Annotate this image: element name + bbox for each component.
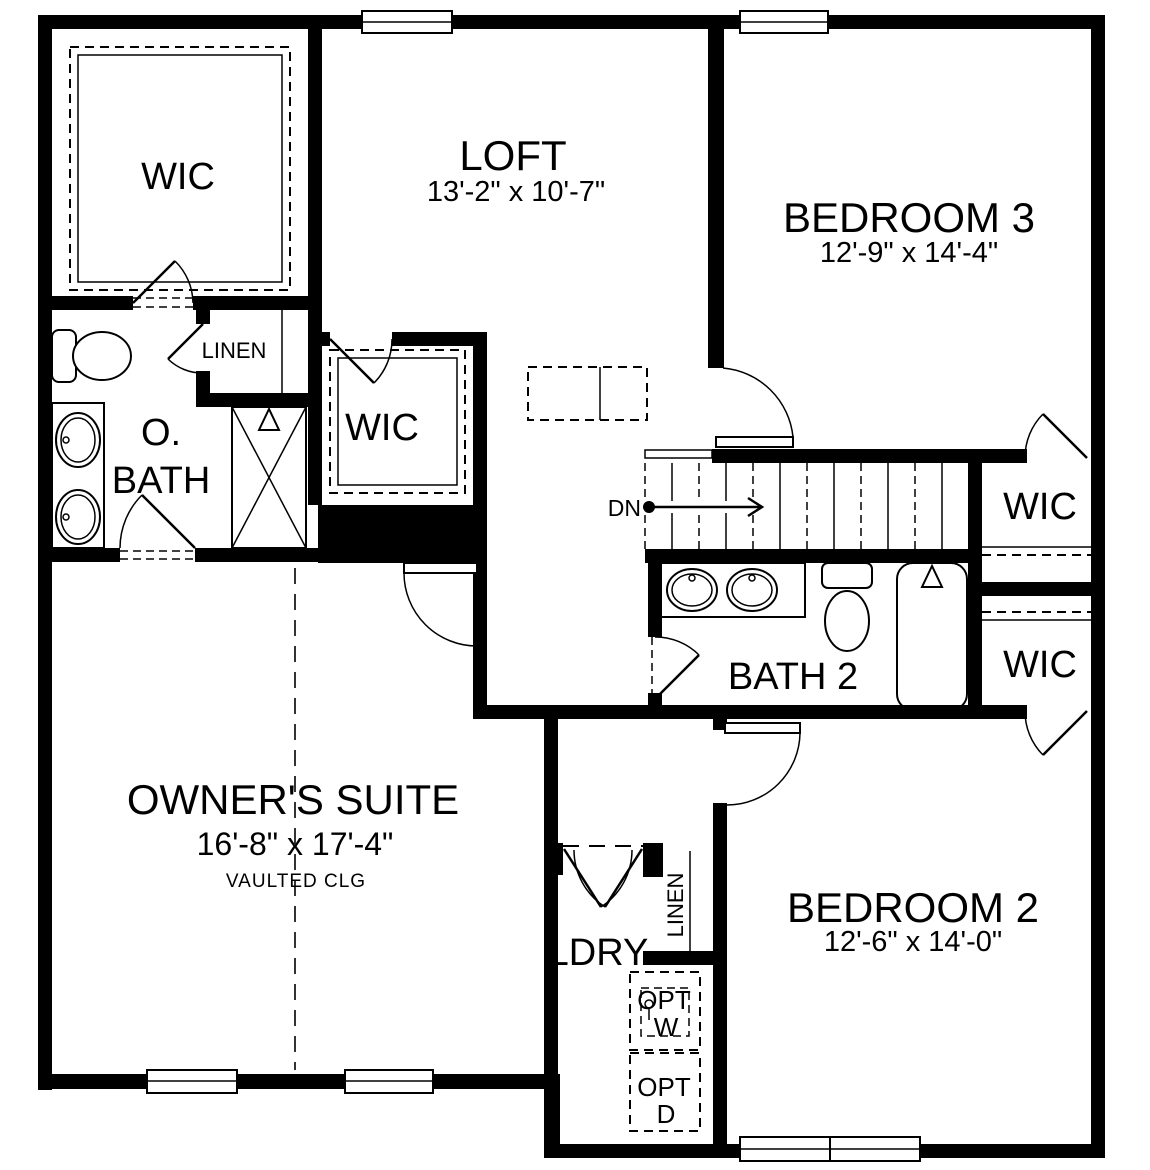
toilet-icon (52, 330, 131, 382)
label-opt-washer-line2: W (654, 1012, 679, 1042)
door-swing-icon-wic-right-lower (1025, 711, 1087, 755)
window-icon-owners-left (147, 1070, 237, 1093)
room-dims-bedroom2: 12'-6" x 14'-0" (824, 926, 1002, 958)
shower-icon (232, 407, 306, 548)
stairs-icon (642, 450, 942, 549)
door-swing-icon-laundry-double (563, 846, 643, 907)
label-opt-washer-line1: OPT (637, 985, 691, 1015)
window-icon-loft (362, 11, 452, 33)
room-label-bedroom2: BEDROOM 2 (787, 884, 1039, 931)
door-swing-icon-owners-suite-entry (404, 563, 477, 646)
door-swing-icon-linen-upper (168, 324, 203, 373)
door-swing-icon-bedroom2 (725, 723, 800, 805)
room-label-bedroom3: BEDROOM 3 (783, 194, 1035, 241)
room-label-linen-laundry: LINEN (663, 873, 688, 938)
room-label-owners-bath-line2: BATH (112, 460, 211, 502)
window-icon-owners-right (345, 1070, 433, 1093)
door-swing-icon-bedroom3 (716, 368, 793, 447)
room-dims-bedroom3: 12'-9" x 14'-4" (820, 237, 998, 269)
door-swing-icon-wic-right-upper (1025, 414, 1087, 458)
window-icon-bedroom3 (740, 11, 828, 33)
label-opt-dryer-line2: D (657, 1099, 676, 1129)
room-label-wic-middle: WIC (345, 407, 419, 449)
hall-dashed-box (528, 367, 647, 420)
floor-plan: WIC LOFT 13'-2" x 10'-7" BEDROOM 3 12'-9… (0, 0, 1150, 1170)
label-opt-dryer-line1: OPT (637, 1072, 691, 1102)
bathtub-icon (897, 563, 967, 710)
room-label-owners-bath-line1: O. (141, 412, 181, 454)
room-label-wic-right-lower: WIC (1003, 644, 1077, 686)
room-note-vaulted-clg: VAULTED CLG (226, 871, 366, 892)
room-label-owners-suite: OWNER'S SUITE (127, 776, 459, 823)
room-label-bath2: BATH 2 (728, 656, 858, 698)
vanity-sinks-icon-bath2 (658, 563, 805, 617)
room-label-wic-right-upper: WIC (1003, 486, 1077, 528)
door-swing-icon-bath2 (652, 637, 699, 699)
room-label-linen-upper: LINEN (202, 338, 267, 363)
door-swing-icon-wic-top-left (133, 261, 193, 307)
stairs-dn-label: DN (608, 495, 641, 521)
room-dims-loft: 13'-2" x 10'-7" (427, 176, 605, 208)
toilet-icon-bath2 (822, 563, 872, 651)
window-icon-bedroom2-double (740, 1137, 920, 1161)
room-label-loft: LOFT (459, 132, 566, 179)
floor-plan-drawing: WIC LOFT 13'-2" x 10'-7" BEDROOM 3 12'-9… (0, 0, 1150, 1170)
down-arrow-icon (642, 498, 772, 516)
room-label-laundry: LDRY (548, 932, 649, 974)
room-label-wic-top-left: WIC (141, 156, 215, 198)
vanity-sinks-icon (52, 403, 104, 548)
room-dims-owners-suite: 16'-8" x 17'-4" (197, 826, 394, 862)
door-swing-icon-wic-middle (330, 339, 392, 383)
door-swing-icon-owners-bath (120, 495, 195, 559)
